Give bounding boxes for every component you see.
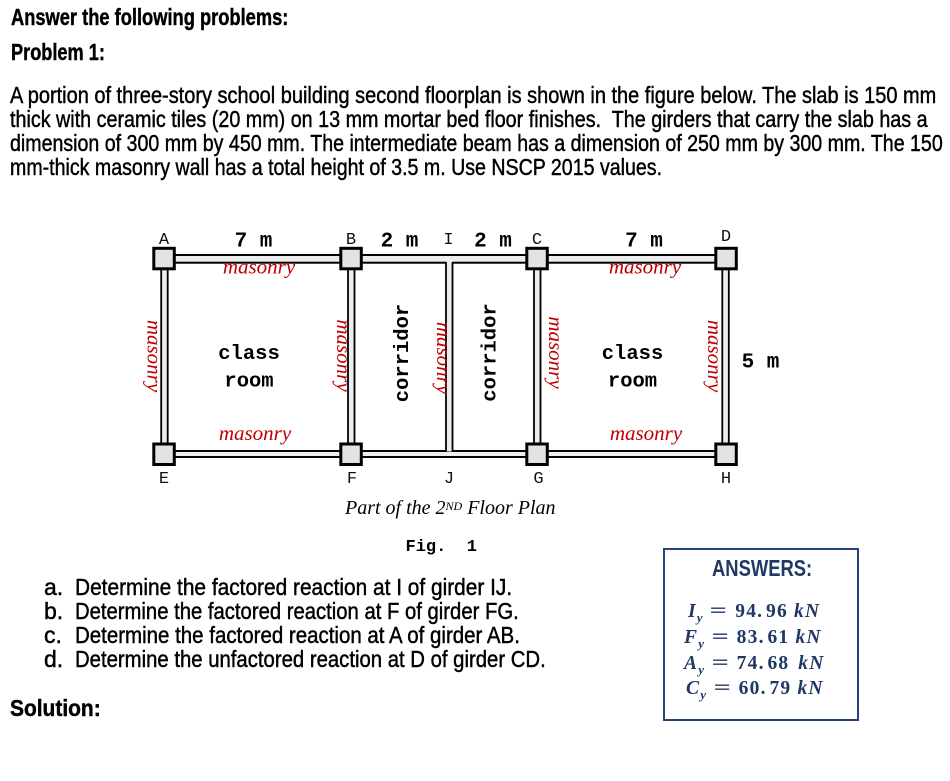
svg-text:room: room — [224, 370, 273, 393]
svg-text:I: I — [443, 231, 453, 250]
svg-text:class: class — [218, 343, 280, 366]
svg-text:7 m: 7 m — [235, 231, 273, 254]
svg-text:F: F — [347, 470, 357, 489]
svg-text:2 m: 2 m — [381, 231, 419, 254]
svg-text:masonry: masonry — [332, 319, 356, 392]
svg-text:corridor: corridor — [480, 303, 503, 401]
svg-text:2 m: 2 m — [474, 231, 512, 254]
svg-text:C: C — [532, 231, 542, 250]
svg-text:corridor: corridor — [392, 304, 415, 402]
svg-text:masonry: masonry — [703, 320, 727, 393]
svg-text:5 m: 5 m — [742, 352, 780, 375]
svg-text:J: J — [444, 470, 454, 489]
svg-text:masonry: masonry — [609, 255, 682, 279]
svg-text:A: A — [159, 231, 170, 250]
svg-text:B: B — [346, 231, 356, 250]
svg-text:E: E — [159, 470, 169, 489]
svg-text:room: room — [608, 370, 657, 393]
svg-text:7 m: 7 m — [625, 231, 663, 254]
svg-text:masonry: masonry — [219, 421, 292, 445]
svg-text:D: D — [721, 228, 731, 247]
svg-text:class: class — [602, 343, 664, 366]
svg-text:masonry: masonry — [544, 316, 568, 389]
svg-text:G: G — [533, 470, 543, 489]
svg-text:H: H — [721, 470, 731, 489]
svg-text:masonry: masonry — [610, 421, 683, 445]
svg-text:masonry: masonry — [142, 320, 166, 393]
svg-text:masonry: masonry — [432, 322, 456, 395]
svg-text:masonry: masonry — [223, 255, 296, 279]
